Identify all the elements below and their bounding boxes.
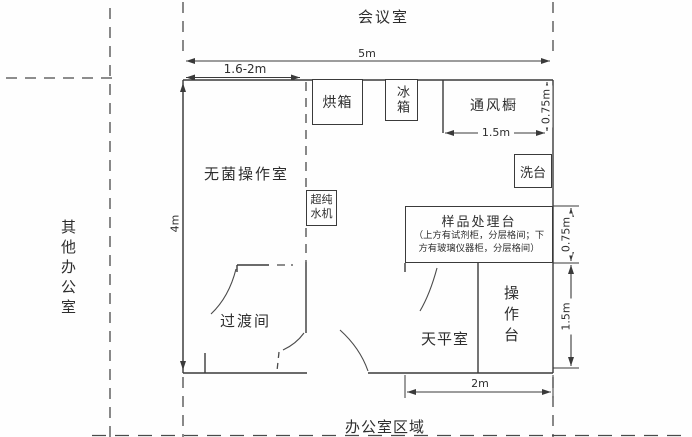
transition-side-door-arc <box>283 333 304 350</box>
wash-station-label: 洗台 <box>520 162 546 181</box>
floor-plan: 会议室 其他办公室 办公室区域 无菌操作室 过渡间 天平室 操作台 通风橱 烘箱… <box>0 0 692 437</box>
fume-hood-label: 通风橱 <box>470 95 518 115</box>
sample-bench-title: 样品处理台 <box>406 211 552 230</box>
dimension-total-height: 4m <box>169 209 182 239</box>
wash-station-box: 洗台 <box>514 154 552 188</box>
meeting-room-label: 会议室 <box>358 6 409 27</box>
fridge-label: 冰箱 <box>392 85 411 115</box>
drying-oven-box: 烘箱 <box>312 79 363 125</box>
transition-top-door-arc <box>211 269 236 314</box>
sample-bench-box: 样品处理台 （上方有试剂柜，分层格间；下 方有玻璃仪器柜，分层格间） <box>405 206 553 263</box>
sterile-room-label: 无菌操作室 <box>204 163 289 184</box>
transition-room-label: 过渡间 <box>220 310 271 331</box>
dashed-partition-lines <box>277 82 306 371</box>
dimension-balance-area-width: 2m <box>466 377 494 390</box>
water-purifier-box: 超纯水机 <box>306 190 337 226</box>
balance-room-door-arc <box>420 268 437 311</box>
dimension-total-width: 5m <box>352 47 382 60</box>
office-area-label: 办公室区域 <box>345 416 425 437</box>
dashed-boundary-lines <box>6 2 690 437</box>
floor-plan-linework <box>0 0 692 437</box>
drying-oven-label: 烘箱 <box>323 92 353 112</box>
sample-bench-note-line1: （上方有试剂柜，分层格间；下 <box>407 230 550 242</box>
other-offices-label: 其他办公室 <box>58 219 77 319</box>
operation-bench-label: 操作台 <box>500 285 521 348</box>
sample-bench-note-line2: 方有玻璃仪器柜，分层格间） <box>407 243 550 255</box>
dimension-sterile-width: 1.6-2m <box>216 63 274 76</box>
dimension-fume-hood-width: 1.5m <box>478 126 514 139</box>
dimension-bench-length: 1.5m <box>560 299 573 335</box>
balance-room-label: 天平室 <box>421 328 469 349</box>
dimension-fume-hood-depth: 0.75m <box>540 86 553 128</box>
dimension-sample-bench-depth: 0.75m <box>560 214 573 256</box>
fridge-box: 冰箱 <box>385 79 418 121</box>
main-entry-door-arc <box>340 330 368 371</box>
